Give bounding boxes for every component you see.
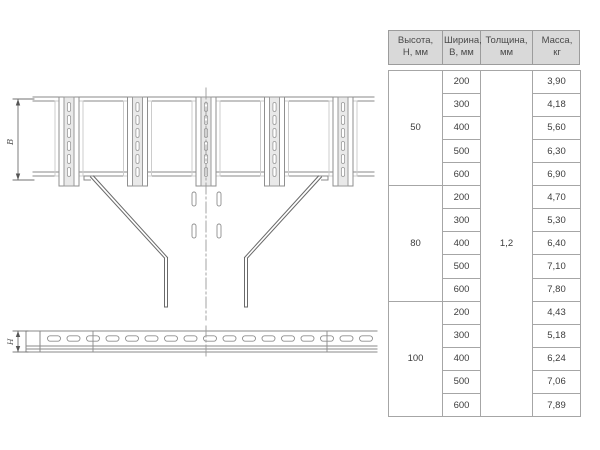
- width-cell: 300: [443, 324, 481, 347]
- rail-side-view: Н: [6, 326, 377, 357]
- height-dimension-label: Н: [6, 338, 15, 346]
- mass-cell: 5,60: [533, 116, 581, 139]
- width-dimension: [13, 99, 34, 180]
- height-cell: 50: [389, 70, 443, 185]
- width-cell: 600: [443, 278, 481, 301]
- width-cell: 500: [443, 139, 481, 162]
- width-cell: 300: [443, 209, 481, 232]
- tee-plan-view: В: [6, 88, 374, 320]
- mass-cell: 7,10: [533, 255, 581, 278]
- header-thickness: Толщина,мм: [481, 31, 533, 64]
- mass-cell: 4,18: [533, 93, 581, 116]
- mass-cell: 4,70: [533, 186, 581, 209]
- header-width: Ширина,В, мм: [443, 31, 481, 64]
- mass-cell: 5,30: [533, 209, 581, 232]
- width-cell: 200: [443, 70, 481, 93]
- mass-cell: 6,40: [533, 232, 581, 255]
- technical-drawing: В Н: [0, 0, 385, 450]
- mass-cell: 7,80: [533, 278, 581, 301]
- mass-cell: 7,06: [533, 370, 581, 393]
- height-cell: 80: [389, 186, 443, 301]
- mass-cell: 7,89: [533, 394, 581, 417]
- width-cell: 500: [443, 370, 481, 393]
- width-cell: 500: [443, 255, 481, 278]
- width-dimension-label: В: [6, 139, 16, 146]
- height-cell: 100: [389, 301, 443, 416]
- width-cell: 600: [443, 394, 481, 417]
- mass-cell: 4,43: [533, 301, 581, 324]
- header-mass: Масса,кг: [533, 31, 581, 64]
- width-cell: 200: [443, 186, 481, 209]
- rail-slots: [48, 336, 373, 341]
- header-height: Высота,Н, мм: [389, 31, 443, 64]
- spec-table-header: Высота,Н, мм Ширина,В, мм Толщина,мм Мас…: [388, 30, 580, 65]
- table-row: 50 200 1,2 3,90: [389, 70, 581, 93]
- width-cell: 400: [443, 232, 481, 255]
- spec-table: Высота,Н, мм Ширина,В, мм Толщина,мм Мас…: [388, 30, 580, 417]
- mass-cell: 3,90: [533, 70, 581, 93]
- mass-cell: 6,30: [533, 139, 581, 162]
- mass-cell: 6,90: [533, 163, 581, 186]
- width-cell: 400: [443, 347, 481, 370]
- width-cell: 600: [443, 163, 481, 186]
- width-cell: 400: [443, 116, 481, 139]
- width-cell: 300: [443, 93, 481, 116]
- spec-table-body: 50 200 1,2 3,90 300 4,18 400 5,60 500 6,…: [388, 70, 581, 417]
- width-cell: 200: [443, 301, 481, 324]
- mass-cell: 6,24: [533, 347, 581, 370]
- branch-slots: [192, 192, 221, 238]
- mass-cell: 5,18: [533, 324, 581, 347]
- thickness-cell: 1,2: [481, 70, 533, 416]
